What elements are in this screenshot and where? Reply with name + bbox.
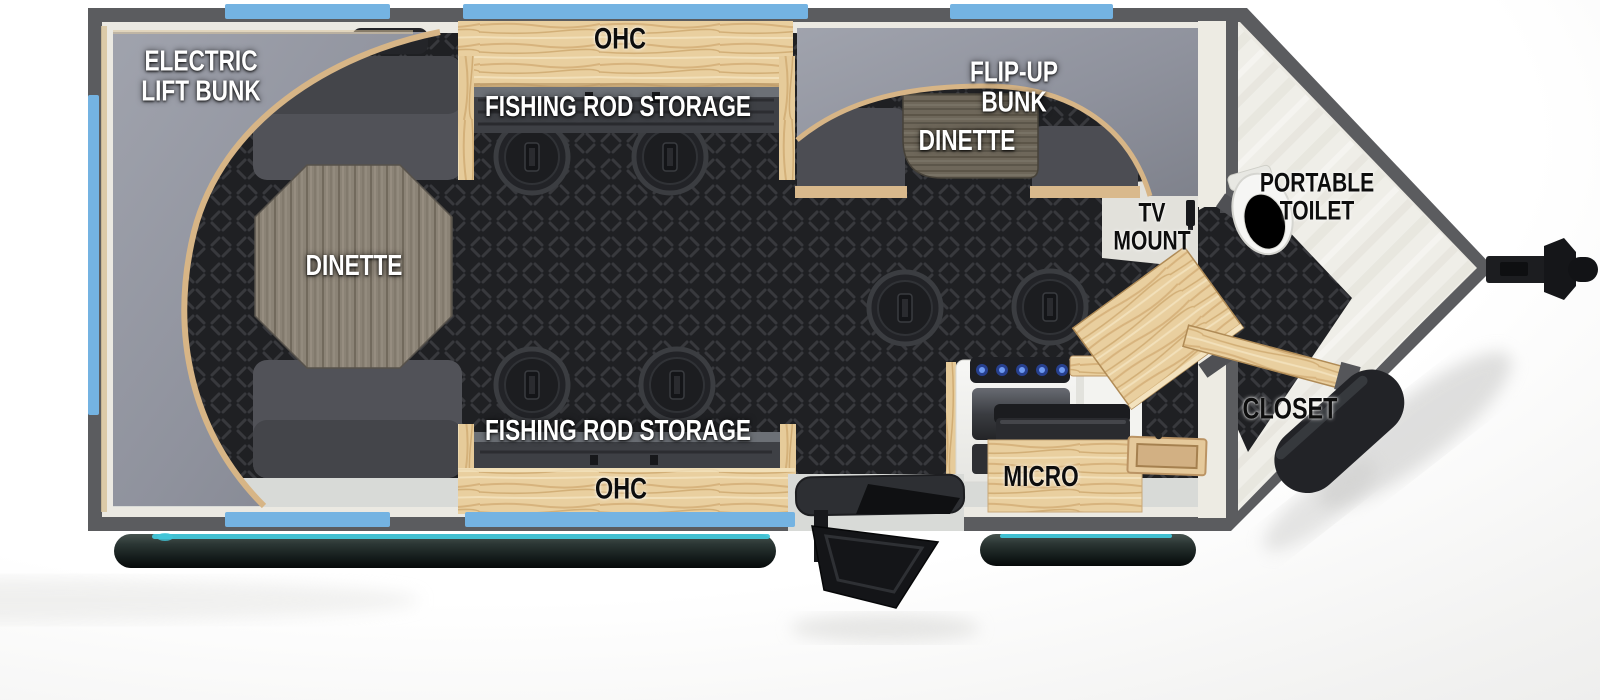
- label-flip-up-bunk: FLIP-UP BUNK: [970, 58, 1058, 117]
- label-tv-mount: TV MOUNT: [1113, 199, 1190, 254]
- window-top-1: [225, 4, 390, 19]
- label-closet: CLOSET: [1243, 395, 1338, 426]
- hitch: [1486, 238, 1598, 300]
- label-fishing-rod-storage-top: FISHING ROD STORAGE: [485, 93, 751, 123]
- window-top-2: [463, 4, 808, 19]
- awning-tube-left: [114, 533, 776, 568]
- label-dinette-rear: DINETTE: [306, 252, 403, 282]
- label-micro: MICRO: [1003, 463, 1078, 493]
- entry-step: [812, 526, 938, 608]
- window-bottom-1: [225, 512, 390, 527]
- label-electric-lift-bunk: ELECTRIC LIFT BUNK: [141, 47, 260, 106]
- label-dinette-front: DINETTE: [919, 127, 1016, 157]
- window-top-3: [950, 4, 1113, 19]
- rv-floorplan: ELECTRIC LIFT BUNK OHC FISHING ROD STORA…: [0, 0, 1600, 700]
- label-portable-toilet: PORTABLE TOILET: [1260, 169, 1374, 224]
- left-wall-wood-trim: [101, 26, 107, 512]
- awning-tube-right: [980, 534, 1196, 566]
- window-bottom-2: [465, 512, 795, 527]
- window-left: [88, 95, 99, 415]
- label-ohc-top: OHC: [594, 25, 646, 56]
- label-ohc-bottom: OHC: [595, 475, 647, 506]
- label-fishing-rod-storage-bottom: FISHING ROD STORAGE: [485, 417, 751, 447]
